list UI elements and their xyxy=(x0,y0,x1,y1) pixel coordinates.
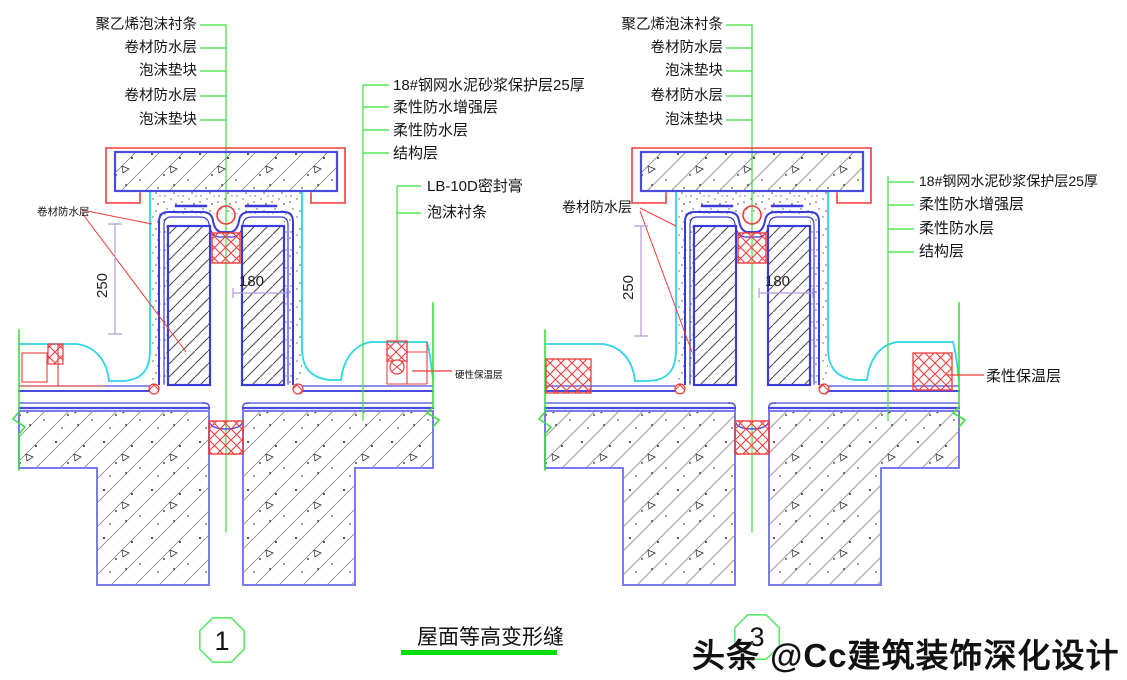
layer-label-2: 柔性防水层 xyxy=(919,220,994,237)
top-label-3: 卷材防水层 xyxy=(651,87,724,104)
dim-250-text: 250 xyxy=(620,275,637,300)
layer-label-2: 柔性防水层 xyxy=(393,122,468,139)
bubble-1-number: 1 xyxy=(214,626,229,656)
layer-label-bracket xyxy=(363,85,389,421)
drawing-title-text: 屋面等高变形缝 xyxy=(417,626,564,649)
top-label-2: 泡沫垫块 xyxy=(139,62,197,79)
top-label-0: 聚乙烯泡沫衬条 xyxy=(96,16,198,33)
detail-1-geometry xyxy=(13,25,439,585)
top-label-2: 泡沫垫块 xyxy=(665,62,723,79)
dimension-250: 250 xyxy=(94,224,122,334)
detail-3-geometry xyxy=(539,25,965,585)
layer-label-1: 柔性防水增强层 xyxy=(393,99,498,116)
drawing-sheet: 250 180 聚乙烯泡沫衬条 卷材防水层 泡沫垫块 卷材防水层 泡沫垫块 18… xyxy=(0,0,1127,680)
flexible-insulation-label: 柔性保温层 xyxy=(986,368,1061,385)
flexible-insulation-block-right xyxy=(913,353,952,390)
watermark-text: 头条 @Cc建筑装饰深化设计 xyxy=(692,637,1120,674)
roof-side-sealant-assembly xyxy=(387,341,452,384)
flexible-insulation-block-left xyxy=(546,359,591,393)
top-label-3: 卷材防水层 xyxy=(125,87,198,104)
title-underline xyxy=(401,650,557,655)
dim-180-text: 180 xyxy=(239,273,264,290)
layer-label-3: 结构层 xyxy=(919,243,964,260)
detail-3: 250 180 聚乙烯泡沫衬条 卷材防水层 泡沫垫块 卷材防水层 泡沫垫块 18… xyxy=(539,16,1098,585)
top-label-4: 泡沫垫块 xyxy=(665,111,723,128)
top-label-1: 卷材防水层 xyxy=(125,39,198,56)
layer-label-3: 结构层 xyxy=(393,145,438,162)
layer-label-1: 柔性防水增强层 xyxy=(919,196,1024,213)
detail-1: 250 180 聚乙烯泡沫衬条 卷材防水层 泡沫垫块 卷材防水层 泡沫垫块 18… xyxy=(13,16,585,585)
dim-180-text: 180 xyxy=(765,273,790,290)
top-label-0: 聚乙烯泡沫衬条 xyxy=(622,16,724,33)
dim-250-text: 250 xyxy=(94,273,111,298)
top-label-4: 泡沫垫块 xyxy=(139,111,197,128)
membrane-label: 卷材防水层 xyxy=(562,199,632,215)
top-label-leaders xyxy=(200,25,226,120)
detail-bubble-1: 1 xyxy=(200,618,244,662)
sealant-label-bracket xyxy=(397,186,421,342)
layer-label-0: 18#钢网水泥砂浆保护层25厚 xyxy=(919,173,1098,189)
dimension-250: 250 xyxy=(620,226,648,336)
drawing-title: 屋面等高变形缝 xyxy=(401,626,564,655)
layer-label-bracket xyxy=(888,176,914,421)
rigid-insulation-label: 硬性保温层 xyxy=(455,369,503,381)
roof-expansion-joint-detail-canvas: 250 180 聚乙烯泡沫衬条 卷材防水层 泡沫垫块 卷材防水层 泡沫垫块 18… xyxy=(0,0,1127,680)
membrane-label: 卷材防水层 xyxy=(37,205,90,218)
top-label-1: 卷材防水层 xyxy=(651,39,724,56)
top-label-leaders xyxy=(726,25,752,120)
joint-label-foam: 泡沫衬条 xyxy=(427,204,487,221)
joint-label-sealant: LB-10D密封膏 xyxy=(427,178,523,195)
layer-label-0: 18#钢网水泥砂浆保护层25厚 xyxy=(393,76,585,94)
